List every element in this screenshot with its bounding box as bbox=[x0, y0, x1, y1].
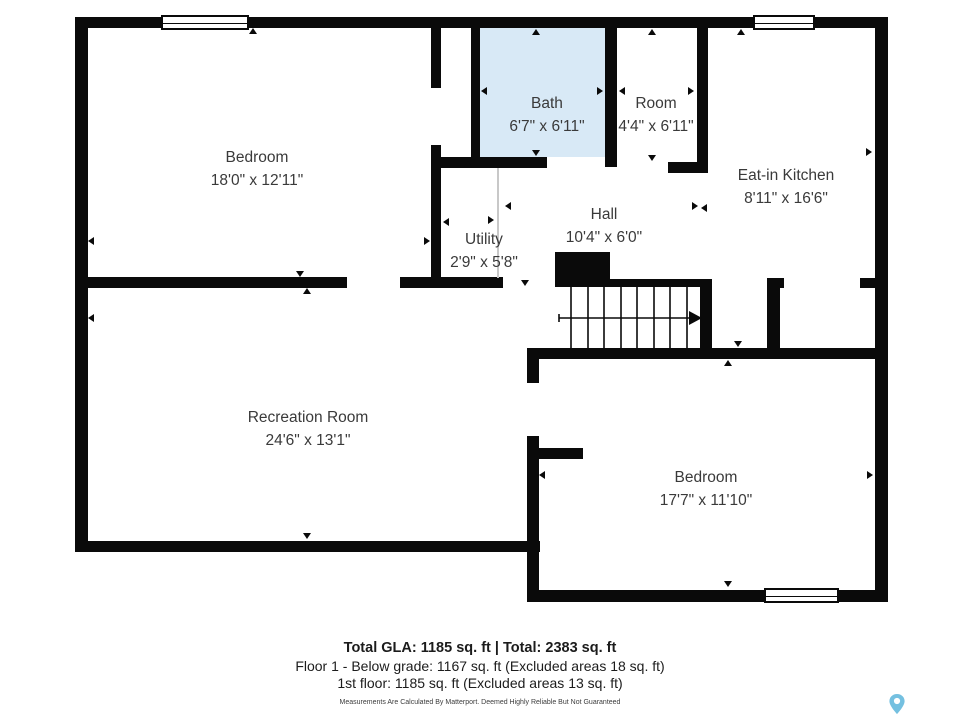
footer-floor1-area: Floor 1 - Below grade: 1167 sq. ft (Excl… bbox=[0, 658, 960, 674]
dimension-marker bbox=[296, 271, 304, 277]
dimension-marker bbox=[521, 280, 529, 286]
dimension-marker bbox=[464, 280, 472, 286]
dimension-marker bbox=[88, 237, 94, 245]
dimension-marker bbox=[443, 218, 449, 226]
dimension-marker bbox=[734, 341, 742, 347]
wall bbox=[527, 436, 539, 602]
wall bbox=[75, 277, 347, 288]
stair-direction-arrow bbox=[689, 311, 702, 325]
room-dimensions: 4'4" x 6'11" bbox=[586, 115, 726, 138]
window bbox=[161, 15, 249, 30]
dimension-marker bbox=[532, 29, 540, 35]
window bbox=[753, 15, 815, 30]
dimension-marker bbox=[88, 314, 94, 322]
wall bbox=[400, 277, 503, 288]
wall bbox=[767, 278, 780, 350]
wall bbox=[875, 17, 888, 602]
wall bbox=[75, 541, 540, 552]
footer-first-floor-area: 1st floor: 1185 sq. ft (Excluded areas 1… bbox=[0, 675, 960, 691]
room-label-recreation: Recreation Room 24'6" x 13'1" bbox=[178, 406, 438, 452]
dimension-marker bbox=[737, 29, 745, 35]
room-name: Hall bbox=[524, 203, 684, 226]
dimension-marker bbox=[648, 29, 656, 35]
room-name: Bedroom bbox=[147, 146, 367, 169]
footer-totals: Total GLA: 1185 sq. ft | Total: 2383 sq.… bbox=[0, 640, 960, 656]
dimension-marker bbox=[648, 155, 656, 161]
room-dimensions: 17'7" x 11'10" bbox=[596, 489, 816, 512]
dimension-marker bbox=[724, 360, 732, 366]
door-jamb bbox=[860, 278, 876, 288]
dimension-marker bbox=[303, 533, 311, 539]
room-dimensions: 24'6" x 13'1" bbox=[178, 429, 438, 452]
dimension-marker bbox=[532, 150, 540, 156]
room-name: Room bbox=[586, 92, 726, 115]
room-label-kitchen: Eat-in Kitchen 8'11" x 16'6" bbox=[686, 164, 886, 210]
dimension-marker bbox=[724, 581, 732, 587]
room-label-room: Room 4'4" x 6'11" bbox=[586, 92, 726, 138]
room-label-hall: Hall 10'4" x 6'0" bbox=[524, 203, 684, 249]
dimension-marker bbox=[866, 148, 872, 156]
dimension-marker bbox=[505, 202, 511, 210]
room-dimensions: 2'9" x 5'8" bbox=[414, 251, 554, 274]
wall bbox=[437, 157, 547, 168]
footer-disclaimer: Measurements Are Calculated By Matterpor… bbox=[0, 699, 960, 706]
room-dimensions: 8'11" x 16'6" bbox=[686, 187, 886, 210]
matterport-pin-icon bbox=[886, 691, 908, 717]
wall bbox=[431, 28, 441, 88]
dimension-marker bbox=[464, 161, 472, 167]
dimension-marker bbox=[539, 471, 545, 479]
dimension-marker bbox=[249, 28, 257, 34]
room-name: Bedroom bbox=[596, 466, 816, 489]
dimension-marker bbox=[488, 216, 494, 224]
room-dimensions: 10'4" x 6'0" bbox=[524, 226, 684, 249]
wall bbox=[537, 448, 583, 459]
dimension-marker bbox=[303, 288, 311, 294]
room-name: Recreation Room bbox=[178, 406, 438, 429]
floor-plan: Bedroom 18'0" x 12'11" Bath 6'7" x 6'11"… bbox=[0, 0, 960, 720]
staircase bbox=[555, 285, 705, 351]
room-name: Eat-in Kitchen bbox=[686, 164, 886, 187]
chimney-block bbox=[555, 252, 610, 287]
window bbox=[764, 588, 839, 603]
room-label-bedroom1: Bedroom 18'0" x 12'11" bbox=[147, 146, 367, 192]
door-jamb bbox=[767, 278, 784, 288]
dimension-marker bbox=[867, 471, 873, 479]
room-dimensions: 18'0" x 12'11" bbox=[147, 169, 367, 192]
room-label-bedroom2: Bedroom 17'7" x 11'10" bbox=[596, 466, 816, 512]
